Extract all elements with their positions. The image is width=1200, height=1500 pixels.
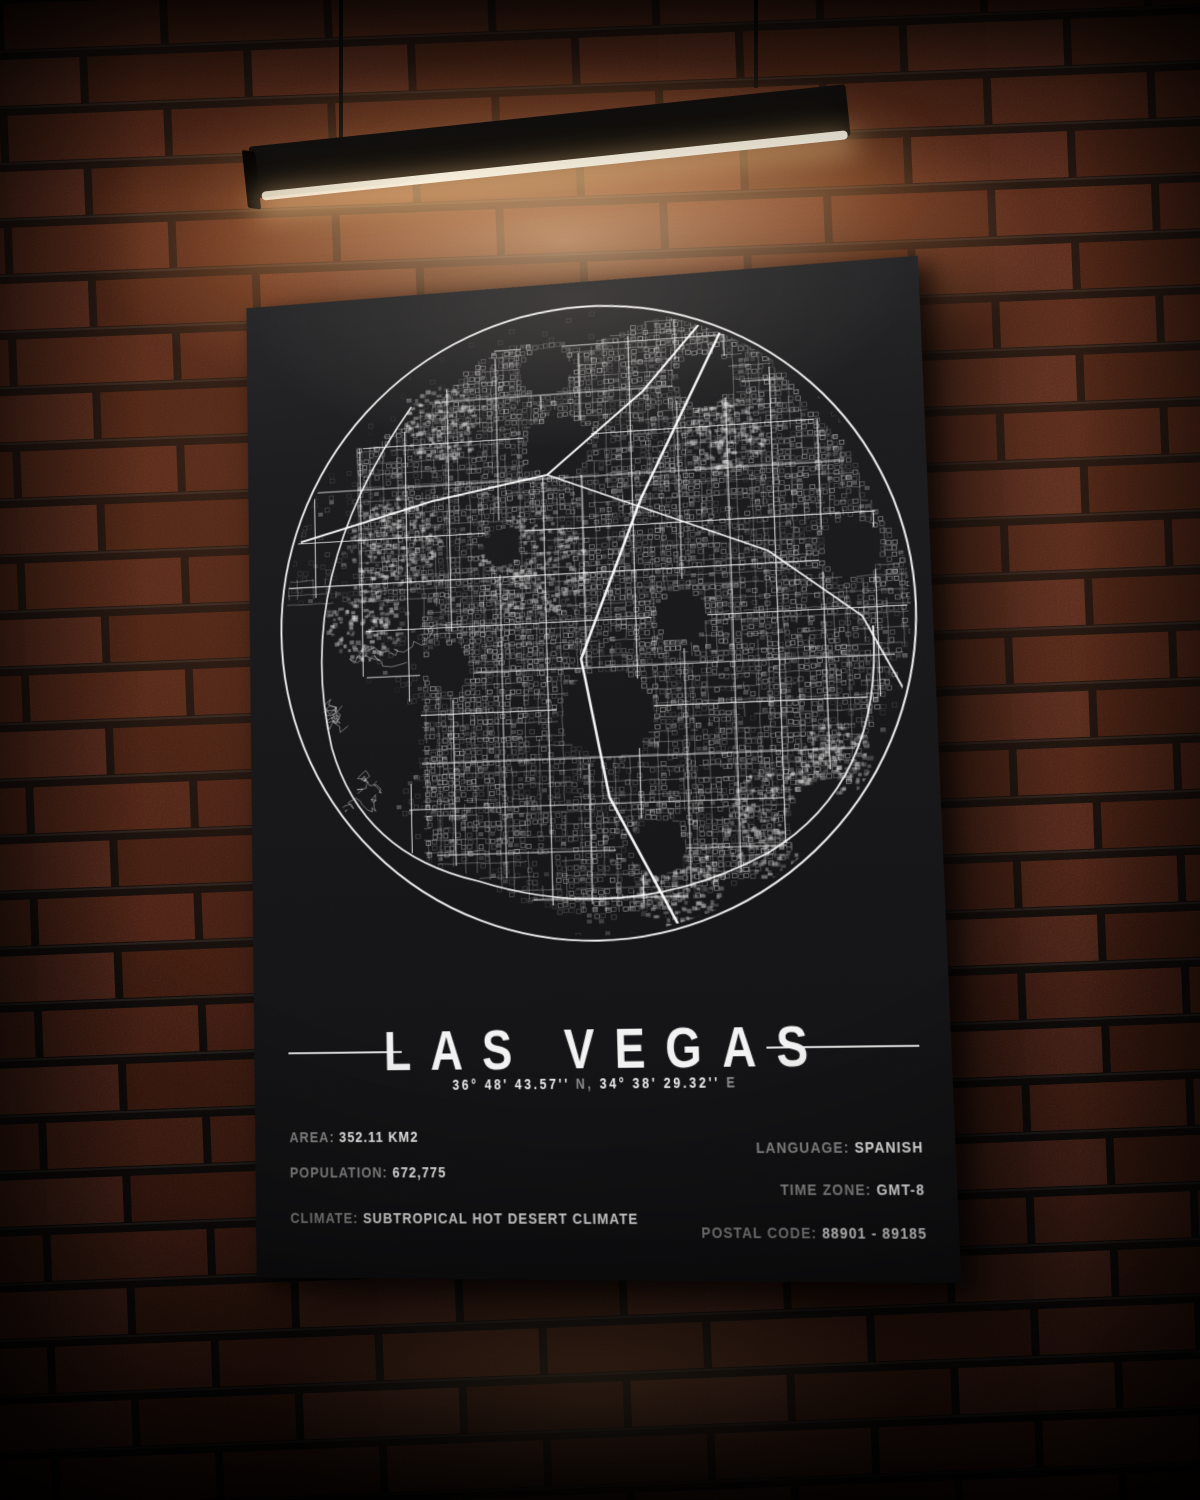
lamp-rod-left: [339, 0, 343, 138]
info-row-language: LANGUAGE: SPANISH: [733, 1139, 924, 1158]
lamp-rod-right: [754, 0, 758, 88]
info-row-population: POPULATION: 672,775: [290, 1164, 469, 1181]
longitude-value: 34° 38' 29.32'': [599, 1074, 720, 1092]
longitude-suffix: E: [726, 1074, 738, 1091]
city-map-canvas: [270, 274, 938, 955]
area-value: 352.11 KM2: [339, 1129, 419, 1147]
language-label: LANGUAGE:: [756, 1139, 850, 1157]
area-label: AREA:: [289, 1129, 334, 1146]
population-label: POPULATION:: [290, 1164, 388, 1181]
scene: LAS VEGAS 36° 48' 43.57'' N, 34° 38' 29.…: [0, 0, 1200, 1500]
postalcode-label: POSTAL CODE:: [701, 1224, 817, 1242]
population-value: 672,775: [392, 1164, 446, 1181]
climate-label: CLIMATE:: [290, 1210, 358, 1227]
map-poster: LAS VEGAS 36° 48' 43.57'' N, 34° 38' 29.…: [246, 256, 961, 1283]
latitude-value: 36° 48' 43.57'': [452, 1076, 570, 1093]
timezone-label: TIME ZONE:: [780, 1181, 872, 1199]
language-value: SPANISH: [854, 1139, 924, 1157]
info-row-timezone: TIME ZONE: GMT-8: [761, 1181, 926, 1199]
climate-value: SUBTROPICAL HOT DESERT CLIMATE: [363, 1210, 639, 1228]
info-row-climate: CLIMATE: SUBTROPICAL HOT DESERT CLIMATE: [290, 1210, 687, 1229]
info-row-area: AREA: 352.11 KM2: [289, 1129, 436, 1147]
latitude-suffix: N,: [576, 1075, 594, 1092]
postalcode-value: 88901 - 89185: [822, 1225, 928, 1244]
map-circle: [270, 274, 938, 955]
timezone-value: GMT-8: [876, 1181, 925, 1199]
info-row-postalcode: POSTAL CODE: 88901 - 89185: [671, 1224, 927, 1243]
poster-title: LAS VEGAS: [365, 1017, 830, 1080]
